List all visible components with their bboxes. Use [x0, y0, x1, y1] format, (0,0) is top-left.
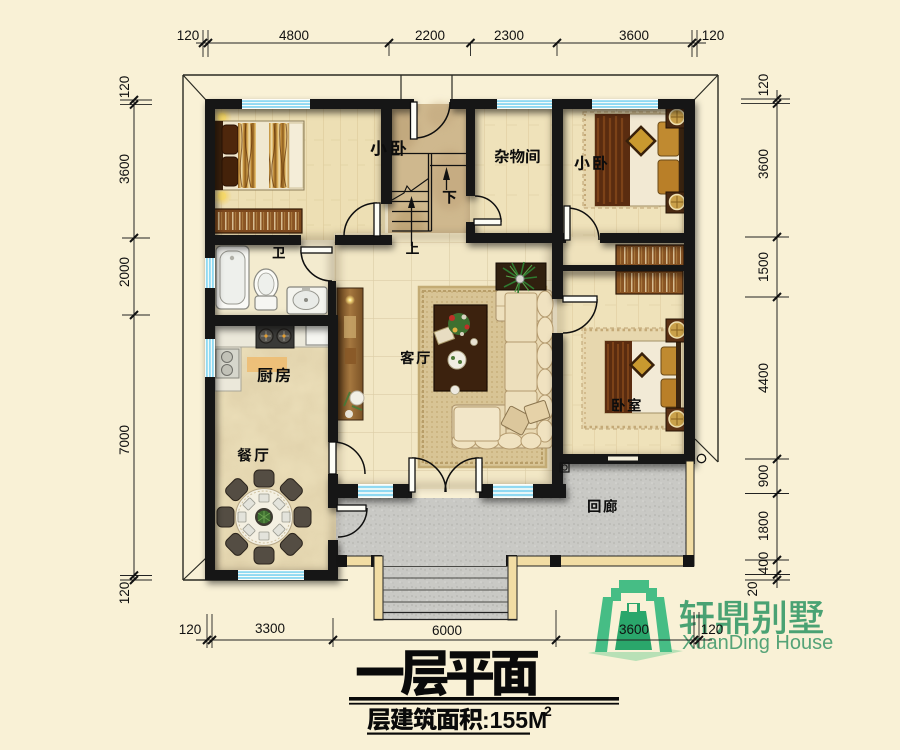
svg-text:1500: 1500	[756, 252, 771, 282]
svg-text:3600: 3600	[619, 28, 649, 43]
svg-text:6000: 6000	[432, 623, 462, 638]
svg-text:2: 2	[544, 703, 552, 719]
svg-text:4400: 4400	[756, 363, 771, 393]
svg-text:2300: 2300	[494, 28, 524, 43]
svg-text:120: 120	[179, 622, 202, 637]
svg-text:2000: 2000	[117, 257, 132, 287]
svg-text:7000: 7000	[117, 425, 132, 455]
svg-text:3600: 3600	[619, 622, 649, 637]
svg-text:400: 400	[756, 552, 771, 575]
svg-text:1800: 1800	[756, 511, 771, 541]
svg-text:900: 900	[756, 465, 771, 488]
svg-text:120: 120	[117, 76, 132, 99]
svg-text:3600: 3600	[117, 154, 132, 184]
svg-text:120: 120	[756, 74, 771, 97]
svg-text:3300: 3300	[255, 621, 285, 636]
svg-text:20: 20	[745, 581, 760, 596]
svg-text:2200: 2200	[415, 28, 445, 43]
svg-text:120: 120	[702, 28, 725, 43]
svg-text:120: 120	[117, 582, 132, 605]
svg-text:120: 120	[177, 28, 200, 43]
svg-text:3600: 3600	[756, 149, 771, 179]
svg-text::155M: :155M	[482, 707, 547, 733]
svg-text:4800: 4800	[279, 28, 309, 43]
svg-text:120: 120	[701, 622, 724, 637]
